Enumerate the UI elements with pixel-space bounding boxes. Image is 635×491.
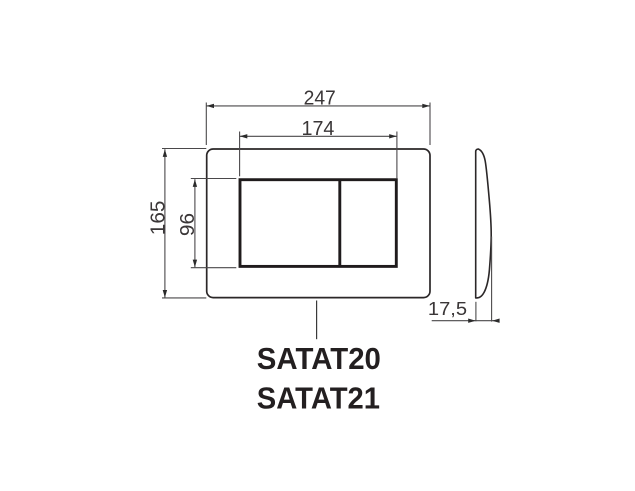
svg-text:17,5: 17,5 <box>428 299 467 319</box>
svg-text:165: 165 <box>147 201 169 236</box>
svg-text:247: 247 <box>304 87 336 109</box>
svg-text:SATAT21: SATAT21 <box>257 382 380 416</box>
svg-text:SATAT20: SATAT20 <box>257 342 381 376</box>
svg-text:174: 174 <box>302 118 335 140</box>
svg-text:96: 96 <box>177 213 199 236</box>
